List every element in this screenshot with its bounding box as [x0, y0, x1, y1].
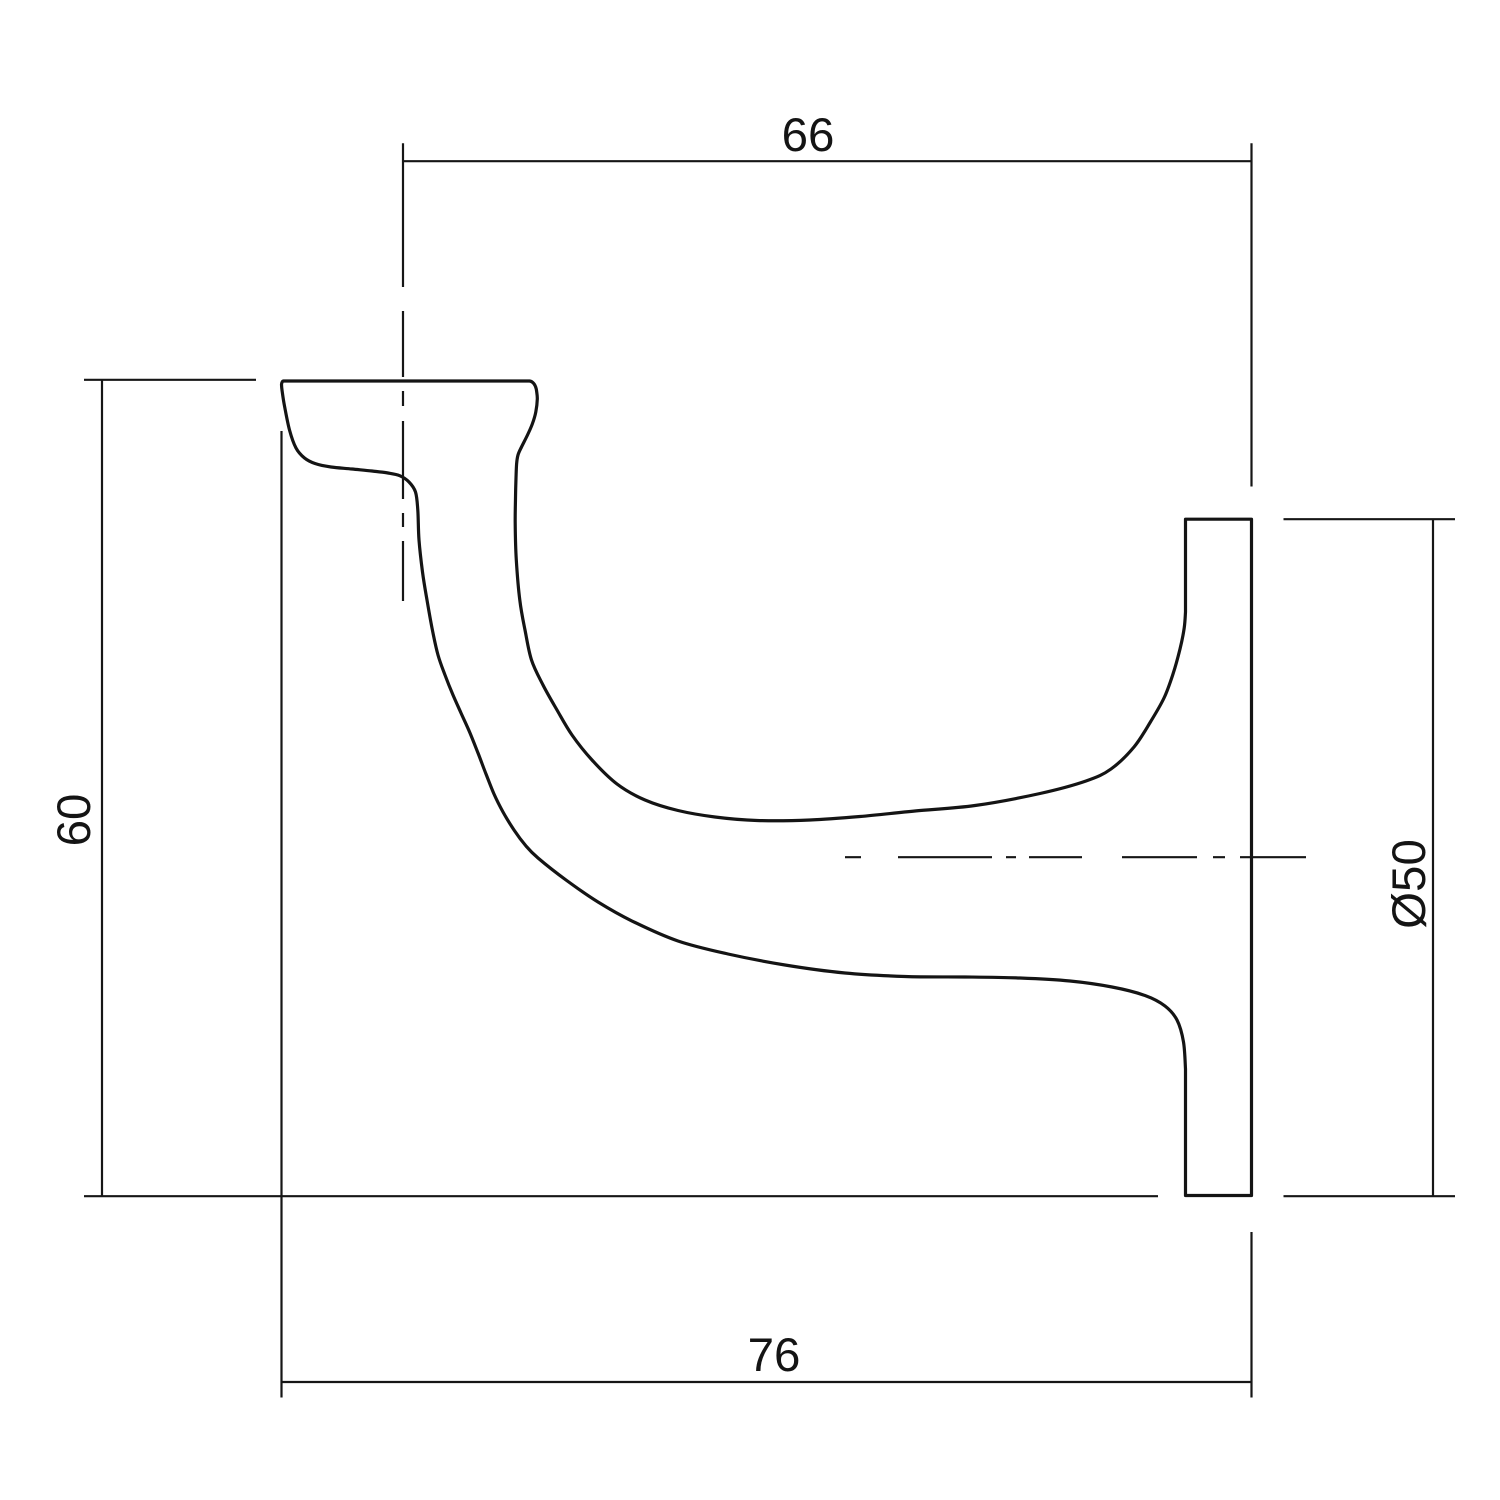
svg-text:Ø50: Ø50 [1383, 839, 1436, 929]
svg-text:66: 66 [782, 109, 835, 162]
svg-text:76: 76 [748, 1329, 801, 1382]
svg-text:60: 60 [48, 794, 101, 847]
